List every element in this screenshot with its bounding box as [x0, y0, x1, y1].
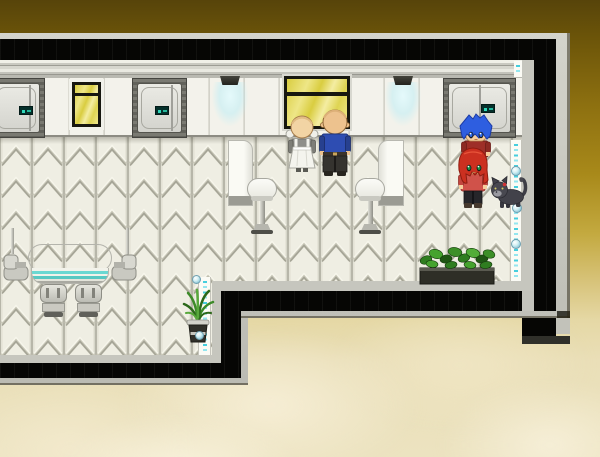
stool-left[interactable] [246, 176, 278, 238]
npc-girl-red-hair[interactable] [454, 144, 492, 214]
npc-maid[interactable] [285, 114, 319, 178]
glass-orb [195, 331, 204, 340]
table-side-stripes [31, 268, 109, 284]
wall-floor-shadow [0, 137, 522, 144]
chair-side-right[interactable] [110, 250, 138, 284]
door-left-keypad-icon [19, 106, 33, 115]
wall-column-cap [522, 336, 570, 344]
frame-edge-bottom-left [0, 383, 248, 385]
glass-orb [192, 275, 201, 284]
chair-front-left[interactable] [40, 284, 67, 318]
chair-front-right[interactable] [75, 284, 102, 318]
npc-man[interactable] [317, 108, 353, 180]
game-viewport [0, 0, 600, 457]
lamp-right-icon [393, 76, 413, 85]
npc-black-cat[interactable] [490, 175, 530, 209]
lamp-left-icon [220, 76, 240, 85]
door-mid[interactable] [132, 78, 187, 138]
door-mid-seam [171, 85, 173, 131]
door-mid-keypad-icon [155, 106, 169, 115]
stool-right[interactable] [354, 176, 386, 238]
window-small [69, 79, 104, 130]
light-strip-corner [514, 61, 522, 77]
table-set [2, 226, 142, 321]
glass-orb [511, 239, 521, 249]
frame-edge-right [567, 33, 570, 318]
lamp-right-glow [385, 82, 421, 126]
wall-column-extension [556, 318, 570, 334]
lamp-left-glow [212, 82, 248, 126]
door-left[interactable] [0, 78, 45, 138]
wall-column-extension [522, 291, 534, 311]
chair-side-left[interactable] [2, 250, 30, 284]
potted-plant[interactable] [181, 288, 217, 350]
planter-box[interactable] [418, 242, 498, 286]
frame-edge-bottom-right [241, 316, 570, 318]
wall-cornice [0, 60, 534, 78]
